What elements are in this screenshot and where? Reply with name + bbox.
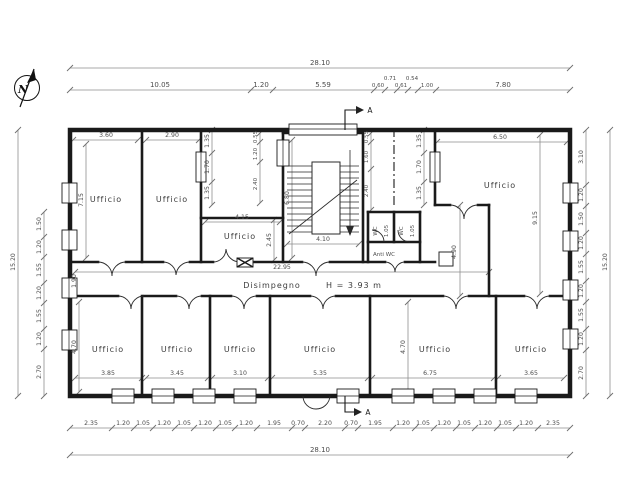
dim-top-3: 0.60	[372, 83, 385, 89]
office-b4-label: Ufficio	[304, 345, 336, 354]
corridor-length: 22.95	[273, 264, 291, 271]
office-b2-width: 3.45	[170, 370, 184, 377]
dim-bot-9: 0.70	[291, 420, 305, 427]
office-right-width: 6.50	[493, 134, 507, 141]
dim-left-5: 1.20	[36, 332, 43, 346]
corridor-label: Disimpegno	[243, 281, 301, 290]
section-marker-bottom-label: A	[365, 408, 371, 417]
wc-left-width: 1.05	[384, 224, 390, 237]
office-top-1-depth: 7.15	[78, 193, 85, 207]
dim-right-3: 1.20	[578, 236, 585, 250]
section-marker-bottom-arrow	[354, 408, 362, 416]
dim-wall-left-1: 1.70	[204, 160, 211, 174]
door-office-b2	[176, 296, 202, 309]
dim-bot-4: 1.05	[177, 420, 191, 427]
north-label: N	[17, 83, 29, 96]
dim-left-overall: 15.20	[10, 253, 17, 271]
door-office-top-2	[163, 262, 190, 275]
door-office-b5	[443, 296, 469, 309]
dim-top-4: 0.71	[384, 76, 396, 82]
dim-top-5: 0.61	[395, 83, 407, 89]
office-b1-label: Ufficio	[92, 345, 124, 354]
dim-right-0: 3.10	[578, 150, 585, 164]
office-b5-label: Ufficio	[419, 345, 451, 354]
office-b3-label: Ufficio	[224, 345, 256, 354]
dim-wall-right-2: 1.35	[416, 186, 423, 200]
office-b5-depth: 4.70	[400, 340, 407, 354]
office-top-1-width: 3.60	[99, 132, 113, 139]
dim-bot-10: 2.20	[318, 420, 332, 427]
dim-left-0: 1.50	[36, 217, 43, 231]
dim-left-6: 2.70	[36, 365, 43, 379]
anti-wc-label: Anti WC	[373, 252, 395, 258]
door-office-b6	[524, 296, 550, 309]
corridor-width: 1.90	[71, 274, 78, 288]
dim-right-7: 1.20	[578, 332, 585, 346]
floor-plan-page: N A A 28.10 10.05 1.20 5.59 0.60 0.71 0.…	[0, 0, 640, 504]
dim-hall-left-2: 2.40	[253, 177, 259, 190]
dim-bot-20: 2.35	[546, 420, 560, 427]
dim-bot-0: 2.35	[84, 420, 98, 427]
dim-left-2: 1.55	[36, 263, 43, 277]
office-b3-width: 3.10	[233, 370, 247, 377]
compass: N	[15, 69, 40, 107]
office-mid-width: 4.15	[235, 214, 249, 221]
door-office-mid	[213, 249, 240, 262]
dim-top-0: 10.05	[150, 81, 170, 89]
dim-bottom-overall: 28.10	[310, 446, 330, 454]
section-marker-top-label: A	[367, 106, 373, 115]
stair-well-core	[312, 162, 340, 234]
dim-top-7: 1.00	[421, 83, 434, 89]
dim-hall-right-2: 2.40	[364, 184, 370, 197]
dim-bot-2: 1.05	[136, 420, 150, 427]
dim-left-3: 1.20	[36, 286, 43, 300]
dim-bot-6: 1.05	[218, 420, 232, 427]
dim-bot-13: 1.20	[396, 420, 410, 427]
office-mid-label: Ufficio	[224, 232, 256, 241]
dim-hall-right-1: 1.60	[364, 150, 370, 163]
door-office-right	[450, 205, 478, 219]
dim-top-overall: 28.10	[310, 59, 330, 67]
stairs	[287, 150, 359, 236]
dim-ticks-left	[15, 127, 47, 399]
wc-right-width: 1.05	[410, 224, 416, 237]
dim-bot-18: 1.05	[498, 420, 512, 427]
dim-right-overall: 15.20	[602, 253, 609, 271]
dim-right-4: 1.55	[578, 260, 585, 274]
office-b6-label: Ufficio	[515, 345, 547, 354]
stair-arrow	[346, 226, 354, 236]
wc-left-label: WC	[373, 226, 379, 235]
dim-bot-3: 1.20	[157, 420, 171, 427]
office-b4-width: 5.35	[313, 370, 327, 377]
office-top-2-width: 2.90	[165, 132, 179, 139]
dim-bot-11: 0.70	[344, 420, 358, 427]
dim-top-6: 0.54	[406, 76, 419, 82]
wc-right-label: WC	[399, 226, 405, 235]
door-office-b4	[310, 296, 336, 309]
dim-top-1: 1.20	[253, 81, 269, 89]
dim-bot-7: 1.20	[239, 420, 253, 427]
dim-top-8: 7.80	[495, 81, 511, 89]
dim-wall-left-2: 1.35	[204, 186, 211, 200]
door-office-b1	[118, 296, 144, 309]
office-right-annex-depth: 4.90	[451, 245, 458, 259]
office-b2-label: Ufficio	[161, 345, 193, 354]
floor-plan-drawing: N A A 28.10 10.05 1.20 5.59 0.60 0.71 0.…	[0, 0, 640, 504]
dim-bot-5: 1.20	[198, 420, 212, 427]
dim-wall-left-0: 1.35	[204, 134, 211, 148]
office-mid-depth: 2.45	[266, 233, 273, 247]
office-b1-depth: 4.70	[71, 340, 78, 354]
dim-bot-16: 1.05	[457, 420, 471, 427]
door-office-b3	[231, 296, 257, 309]
dim-right-8: 2.70	[578, 366, 585, 380]
dim-bot-14: 1.05	[416, 420, 430, 427]
dim-right-6: 1.55	[578, 308, 585, 322]
dim-right-2: 1.50	[578, 212, 585, 226]
office-b1-width: 3.85	[101, 370, 115, 377]
dim-hall-left-0: 0.55	[253, 130, 259, 143]
stair-depth: 6.80	[284, 191, 291, 205]
dim-hall-right-0: 0.55	[364, 130, 370, 143]
office-b5-width: 6.75	[423, 370, 437, 377]
dim-bot-8: 1.95	[267, 420, 281, 427]
dim-left-4: 1.55	[36, 309, 43, 323]
office-top-2-label: Ufficio	[156, 195, 188, 204]
office-top-1-label: Ufficio	[90, 195, 122, 204]
office-right-label: Ufficio	[484, 181, 516, 190]
dim-wall-right-1: 1.70	[416, 160, 423, 174]
dim-right-5: 1.20	[578, 284, 585, 298]
dim-bot-12: 1.95	[368, 420, 382, 427]
office-right-depth: 9.15	[532, 211, 539, 225]
corridor-height-note: H = 3.93 m	[326, 281, 382, 290]
section-marker-top-arrow	[356, 106, 364, 114]
dim-bot-19: 1.20	[519, 420, 533, 427]
dim-left-1: 1.20	[36, 240, 43, 254]
dim-hall-left-1: 1.20	[253, 147, 259, 160]
stair-width: 4.10	[316, 236, 330, 243]
duct-symbol	[237, 258, 253, 267]
dim-bot-17: 1.20	[478, 420, 492, 427]
dim-right-1: 1.20	[578, 188, 585, 202]
dim-bot-15: 1.20	[437, 420, 451, 427]
dim-top-2: 5.59	[315, 81, 331, 89]
dim-bot-1: 1.20	[116, 420, 130, 427]
door-stair	[302, 262, 330, 276]
dim-wall-right-0: 1.35	[416, 134, 423, 148]
door-wc-block	[385, 262, 405, 272]
office-b6-width: 3.65	[524, 370, 538, 377]
door-office-top-1	[98, 262, 126, 276]
